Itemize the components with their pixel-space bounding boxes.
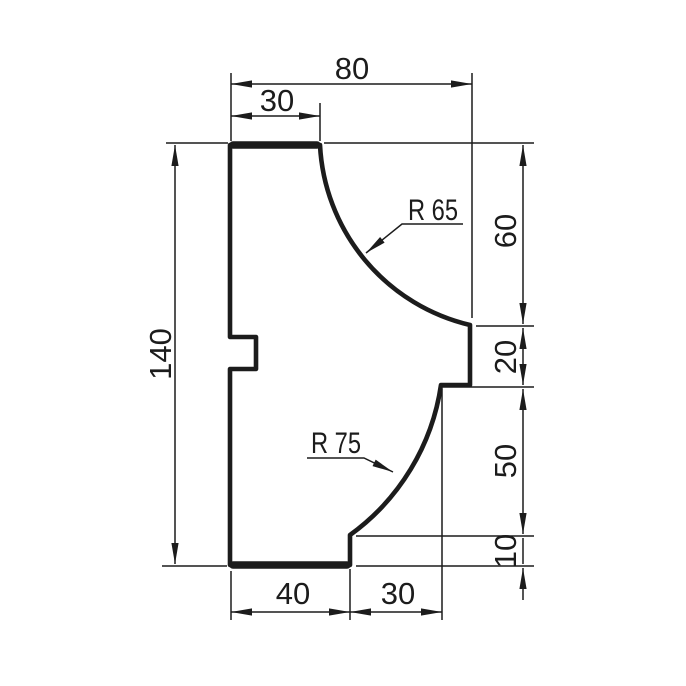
radius-callout-r65: R 65 bbox=[366, 194, 463, 253]
dimension-30-bottom: 30 bbox=[350, 576, 442, 612]
radius-label-r65: R 65 bbox=[408, 194, 458, 227]
technical-profile-drawing: 80 30 140 60 20 50 10 40 bbox=[0, 0, 686, 686]
drawing-canvas: 80 30 140 60 20 50 10 40 bbox=[0, 0, 686, 686]
dimension-40: 40 bbox=[231, 576, 350, 612]
dim-label-30-bottom: 30 bbox=[381, 576, 415, 611]
dimension-30-top: 30 bbox=[231, 83, 320, 118]
dimension-50: 50 bbox=[488, 389, 523, 534]
dim-label-60: 60 bbox=[488, 214, 523, 248]
dim-label-140: 140 bbox=[143, 328, 178, 380]
dim-label-20: 20 bbox=[488, 340, 523, 374]
dim-label-40: 40 bbox=[276, 576, 310, 611]
dimension-60: 60 bbox=[488, 145, 523, 324]
radius-label-r75: R 75 bbox=[311, 427, 361, 460]
dim-label-50: 50 bbox=[488, 444, 523, 478]
dimension-20: 20 bbox=[488, 328, 523, 385]
dim-label-10: 10 bbox=[488, 534, 523, 568]
dimension-10: 10 bbox=[488, 534, 523, 600]
dimension-140: 140 bbox=[143, 145, 178, 564]
dim-label-80: 80 bbox=[335, 51, 369, 86]
radius-r65-leader bbox=[366, 224, 463, 253]
dimension-80: 80 bbox=[231, 51, 472, 86]
dim-label-30-top: 30 bbox=[260, 83, 294, 118]
